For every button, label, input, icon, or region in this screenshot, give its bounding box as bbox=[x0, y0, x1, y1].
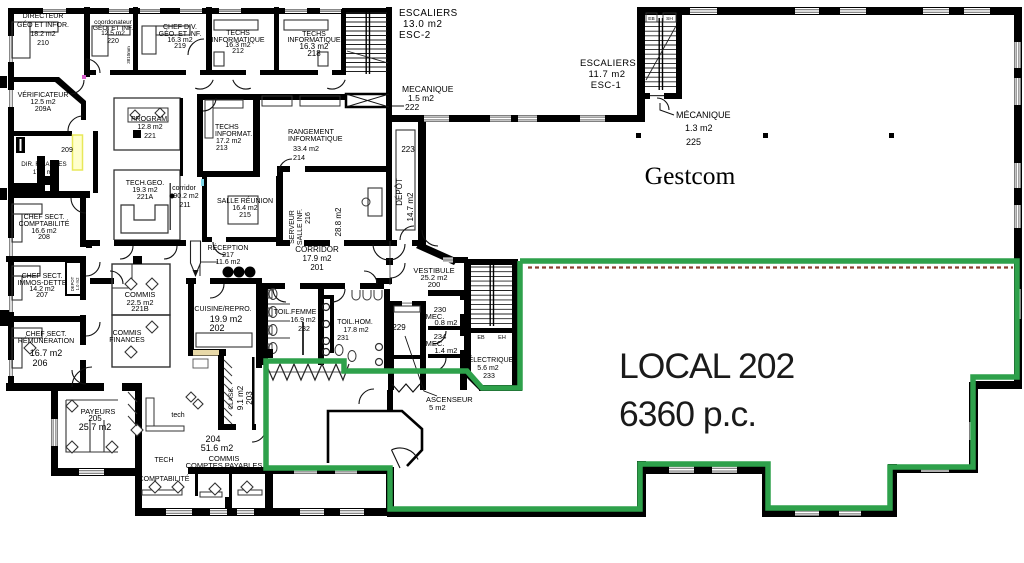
svg-text:PROGRAM.: PROGRAM. bbox=[131, 116, 169, 123]
svg-text:TECHS: TECHS bbox=[226, 30, 250, 37]
svg-text:215: 215 bbox=[239, 212, 251, 219]
svg-text:1.3 m2: 1.3 m2 bbox=[685, 123, 713, 133]
svg-text:233: 233 bbox=[483, 373, 495, 380]
svg-text:220: 220 bbox=[107, 38, 119, 45]
svg-text:11.6 m2: 11.6 m2 bbox=[216, 259, 241, 266]
svg-text:LOCAL 202: LOCAL 202 bbox=[619, 346, 794, 386]
svg-text:209: 209 bbox=[61, 147, 73, 154]
svg-text:CUISINE/REPRO.: CUISINE/REPRO. bbox=[194, 306, 251, 313]
svg-text:200: 200 bbox=[428, 280, 441, 289]
svg-text:MÉCANIQUE: MÉCANIQUE bbox=[676, 110, 731, 120]
svg-text:51.6 m2: 51.6 m2 bbox=[201, 443, 234, 453]
svg-text:18.2 m2: 18.2 m2 bbox=[30, 31, 55, 38]
svg-text:COMPTABILITÉ: COMPTABILITÉ bbox=[19, 219, 70, 228]
svg-text:214: 214 bbox=[293, 153, 305, 162]
svg-text:218: 218 bbox=[307, 49, 321, 58]
svg-text:corridor: corridor bbox=[172, 185, 196, 192]
svg-text:5.6 m2: 5.6 m2 bbox=[477, 365, 499, 372]
svg-text:3810mm: 3810mm bbox=[126, 46, 131, 64]
svg-text:EB: EB bbox=[648, 16, 654, 22]
svg-text:223: 223 bbox=[401, 145, 415, 154]
svg-text:16.9 m2: 16.9 m2 bbox=[290, 317, 315, 324]
svg-text:232: 232 bbox=[298, 326, 310, 333]
svg-text:210: 210 bbox=[37, 40, 49, 47]
svg-text:EH: EH bbox=[498, 335, 506, 341]
svg-text:CHEF DIV.: CHEF DIV. bbox=[163, 24, 197, 31]
svg-text:CHEF SECT.: CHEF SECT. bbox=[24, 214, 65, 221]
svg-text:208: 208 bbox=[38, 234, 50, 241]
svg-text:1.0 m2: 1.0 m2 bbox=[75, 277, 80, 290]
svg-text:222: 222 bbox=[405, 102, 419, 112]
svg-text:11.7 m2: 11.7 m2 bbox=[588, 69, 625, 80]
svg-text:TOIL.HOM.: TOIL.HOM. bbox=[337, 319, 373, 326]
svg-text:203: 203 bbox=[245, 391, 254, 405]
svg-text:DÉPÔT: DÉPÔT bbox=[395, 178, 404, 206]
svg-text:TECH.GEO.: TECH.GEO. bbox=[126, 180, 165, 187]
svg-text:217: 217 bbox=[222, 252, 234, 259]
svg-text:17.9 m2: 17.9 m2 bbox=[303, 254, 332, 263]
svg-text:RÉCEPTION: RÉCEPTION bbox=[208, 243, 249, 252]
svg-text:TECH: TECH bbox=[154, 457, 173, 464]
svg-text:212: 212 bbox=[232, 48, 244, 55]
svg-text:GÉO ET INFOR.: GÉO ET INFOR. bbox=[17, 20, 69, 29]
svg-text:219: 219 bbox=[174, 43, 186, 50]
svg-text:VÉRIFICATEUR: VÉRIFICATEUR bbox=[18, 90, 69, 99]
svg-text:ESCALIERS: ESCALIERS bbox=[580, 58, 636, 69]
svg-text:16.4 m2: 16.4 m2 bbox=[232, 205, 257, 212]
svg-text:COMPTES PAYABLES: COMPTES PAYABLES bbox=[186, 461, 263, 470]
svg-text:225: 225 bbox=[686, 137, 701, 147]
svg-text:12.5 m2: 12.5 m2 bbox=[30, 99, 55, 106]
svg-text:CORRIDOR: CORRIDOR bbox=[295, 245, 339, 254]
svg-text:SH: SH bbox=[666, 16, 673, 22]
svg-text:19.3 m2: 19.3 m2 bbox=[132, 187, 157, 194]
svg-text:CHEF SECT.: CHEF SECT. bbox=[26, 331, 67, 338]
svg-text:ESC-2: ESC-2 bbox=[399, 30, 431, 41]
svg-text:INFORMAT.: INFORMAT. bbox=[215, 131, 252, 138]
svg-text:COMPTABILITÉ: COMPTABILITÉ bbox=[139, 474, 190, 483]
svg-text:90.2 m2: 90.2 m2 bbox=[173, 193, 198, 200]
svg-text:DIRECTEUR: DIRECTEUR bbox=[23, 13, 64, 20]
svg-text:213: 213 bbox=[216, 145, 228, 152]
svg-text:6360 p.c.: 6360 p.c. bbox=[619, 394, 756, 434]
svg-text:206: 206 bbox=[32, 358, 47, 368]
svg-text:221A: 221A bbox=[137, 194, 154, 201]
svg-text:5 m2: 5 m2 bbox=[429, 403, 446, 412]
svg-text:202: 202 bbox=[209, 323, 224, 333]
svg-text:ÉLECTRIQUE: ÉLECTRIQUE bbox=[469, 355, 514, 364]
svg-text:tech: tech bbox=[171, 412, 184, 419]
svg-text:17.2 m2: 17.2 m2 bbox=[216, 138, 241, 145]
svg-text:1.4 m2: 1.4 m2 bbox=[435, 346, 458, 355]
svg-text:SALLE RÉUNION: SALLE RÉUNION bbox=[217, 196, 273, 205]
svg-text:211: 211 bbox=[179, 202, 190, 209]
svg-text:25.7 m2: 25.7 m2 bbox=[79, 422, 112, 432]
svg-text:12.8 m2: 12.8 m2 bbox=[137, 124, 162, 131]
svg-text:FINANCES: FINANCES bbox=[109, 337, 145, 344]
svg-text:201: 201 bbox=[310, 263, 324, 272]
svg-text:229: 229 bbox=[392, 323, 406, 332]
svg-text:13.0 m2: 13.0 m2 bbox=[403, 19, 443, 30]
svg-text:16.7 m2: 16.7 m2 bbox=[30, 348, 63, 358]
svg-text:209A: 209A bbox=[35, 106, 52, 113]
svg-text:17.8 m2: 17.8 m2 bbox=[343, 327, 368, 334]
svg-text:SALLE INF.: SALLE INF. bbox=[297, 209, 304, 245]
svg-text:9.1 m2: 9.1 m2 bbox=[236, 385, 245, 410]
svg-text:CLASS.: CLASS. bbox=[228, 386, 235, 409]
svg-text:33.4 m2: 33.4 m2 bbox=[293, 144, 319, 153]
svg-text:28.8 m2: 28.8 m2 bbox=[334, 207, 343, 236]
svg-text:CHEF SECT.: CHEF SECT. bbox=[22, 273, 63, 280]
svg-text:216: 216 bbox=[305, 212, 312, 224]
svg-text:221: 221 bbox=[144, 133, 156, 140]
svg-text:207: 207 bbox=[36, 292, 48, 299]
svg-text:INFORMATIQUE: INFORMATIQUE bbox=[288, 134, 343, 143]
svg-text:DIR. FINANCES: DIR. FINANCES bbox=[21, 161, 66, 168]
svg-text:EB: EB bbox=[477, 335, 485, 341]
svg-text:SERVEUR: SERVEUR bbox=[289, 210, 296, 244]
svg-text:17.7 m2: 17.7 m2 bbox=[33, 169, 56, 176]
svg-text:221B: 221B bbox=[131, 304, 149, 313]
svg-text:Gestcom: Gestcom bbox=[645, 161, 736, 190]
svg-text:TOIL.FEMME: TOIL.FEMME bbox=[274, 309, 317, 316]
svg-text:TECHS: TECHS bbox=[215, 124, 239, 131]
svg-text:14.7 m2: 14.7 m2 bbox=[406, 192, 415, 221]
svg-text:12.5 m2: 12.5 m2 bbox=[101, 30, 125, 37]
svg-text:ESC-1: ESC-1 bbox=[591, 80, 621, 91]
svg-text:RÉMUNÉRATION: RÉMUNÉRATION bbox=[18, 336, 74, 345]
svg-text:COMMIS: COMMIS bbox=[113, 330, 142, 337]
svg-text:0.8 m2: 0.8 m2 bbox=[435, 318, 458, 327]
svg-text:ESCALIERS: ESCALIERS bbox=[399, 8, 458, 19]
svg-text:231: 231 bbox=[337, 335, 349, 342]
